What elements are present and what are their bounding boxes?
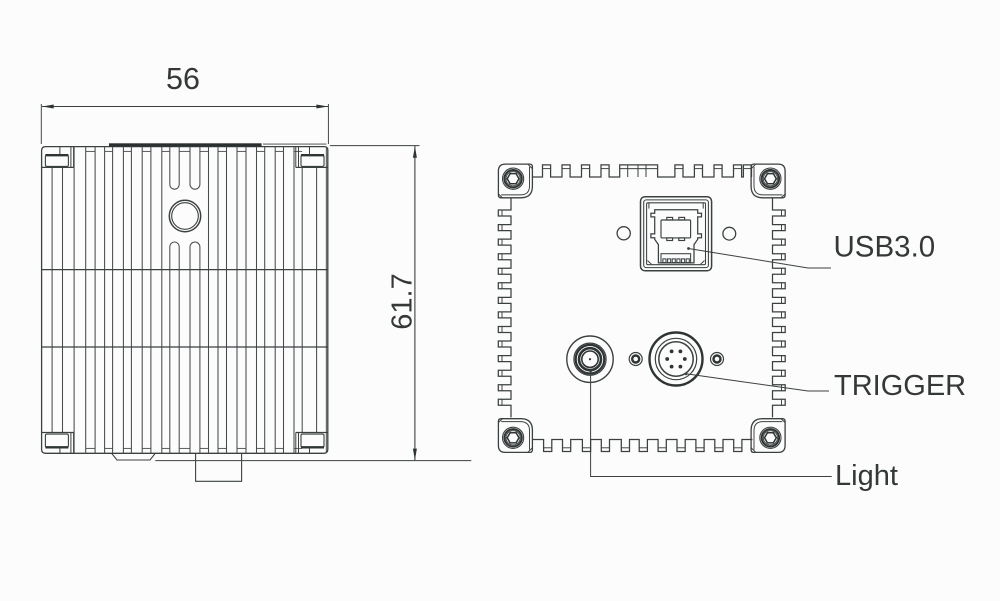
svg-text:USB3.0: USB3.0 — [834, 231, 936, 264]
svg-text:56: 56 — [166, 62, 200, 96]
svg-text:TRIGGER: TRIGGER — [834, 370, 966, 402]
svg-text:61.7: 61.7 — [387, 273, 419, 329]
svg-text:Light: Light — [835, 460, 898, 492]
